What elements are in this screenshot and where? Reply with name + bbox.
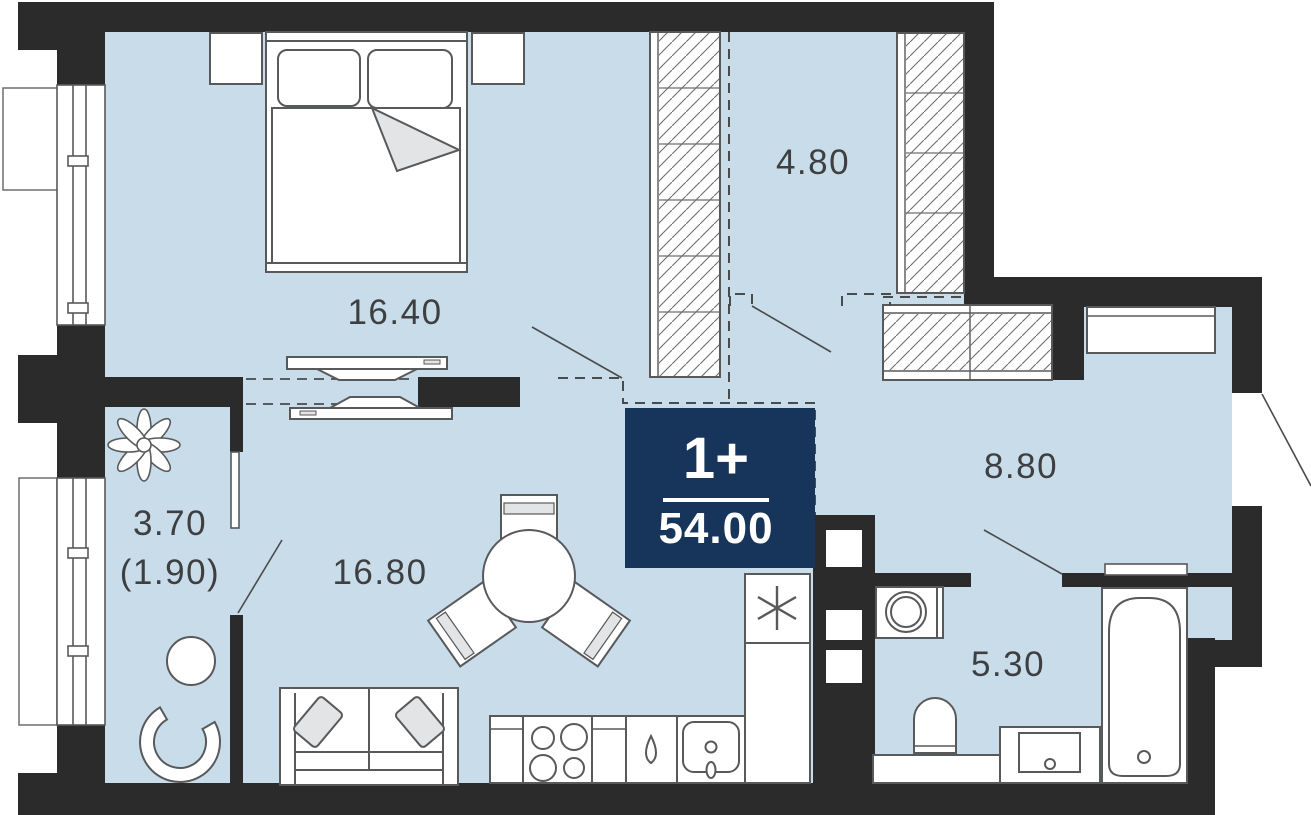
hallway-area-label: 8.80 (984, 447, 1058, 486)
fridge (745, 574, 810, 783)
apartment-type-label: 1+ (683, 426, 749, 491)
vanity-sink (1000, 727, 1100, 783)
entrance-door-swing (1262, 394, 1311, 486)
hall-shelf (1087, 307, 1215, 353)
balcony-window (57, 478, 105, 725)
wardrobe-2 (897, 33, 964, 293)
tall-cabinet (745, 643, 810, 783)
bedroom-area-label: 16.40 (347, 293, 442, 332)
balcony-reduced-area-label: (1.90) (120, 553, 220, 592)
sofa (280, 688, 458, 785)
pillow (368, 50, 452, 108)
nightstand-right (472, 33, 524, 84)
wardrobe-3 (883, 305, 1052, 380)
dining-table (483, 530, 575, 622)
nightstand-left (210, 33, 262, 84)
corridor-area-label: 4.80 (776, 143, 850, 182)
floor-plan: 16.40 4.80 8.80 16.80 3.70 (1.90) 5.30 1… (0, 0, 1311, 815)
pillow (278, 50, 360, 106)
bedroom-window (57, 85, 105, 325)
bathtub (1102, 588, 1187, 783)
balcony-table (167, 637, 215, 685)
washing-machine (876, 587, 943, 638)
floor-plan-svg: 16.40 4.80 8.80 16.80 3.70 (1.90) 5.30 1… (0, 0, 1311, 815)
shoe-shelf (1105, 564, 1187, 575)
bathroom-area-label: 5.30 (971, 645, 1045, 684)
plant-icon (108, 409, 180, 481)
kitchen-counter (490, 716, 745, 783)
kitchen-sink (683, 722, 739, 778)
blanket (272, 108, 460, 263)
wardrobe-1 (650, 32, 720, 377)
living-area-label: 16.80 (332, 553, 427, 592)
balcony-area-label: 3.70 (133, 504, 207, 543)
apartment-total-area-label: 54.00 (658, 504, 773, 553)
apartment-badge: 1+ 54.00 (625, 408, 815, 568)
